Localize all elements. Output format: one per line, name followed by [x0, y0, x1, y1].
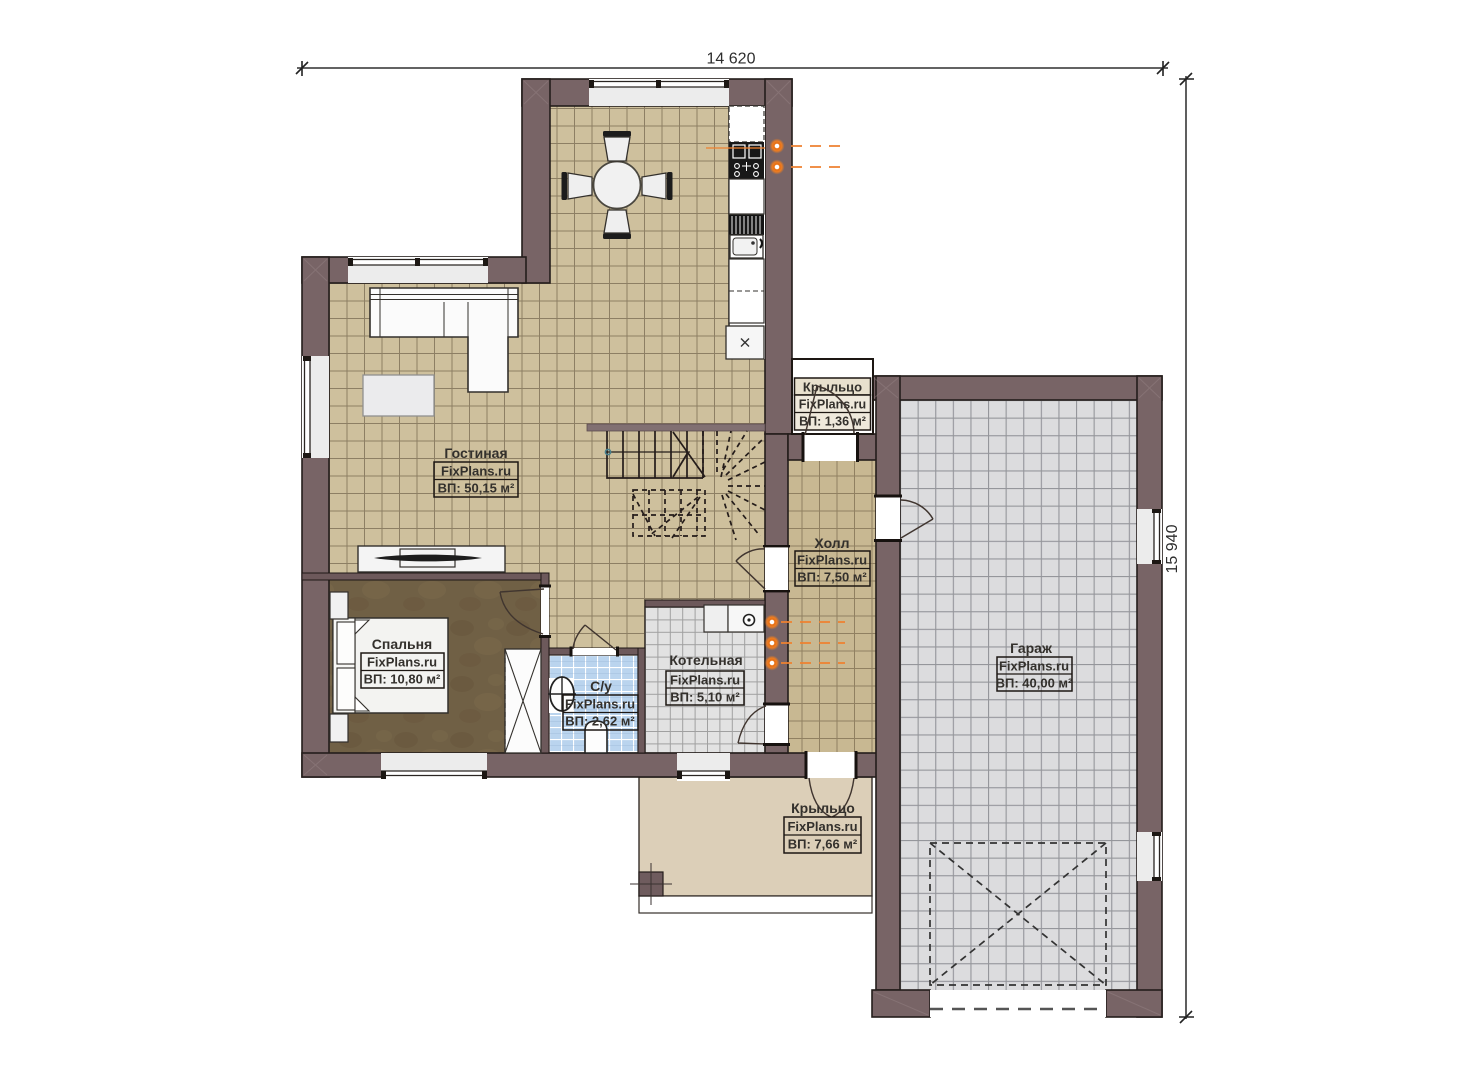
svg-text:С/у: С/у: [590, 678, 612, 694]
svg-text:ВП: 40,00 м²: ВП: 40,00 м²: [996, 676, 1073, 691]
svg-text:FixPlans.ru: FixPlans.ru: [565, 697, 635, 712]
svg-text:Гараж: Гараж: [1010, 640, 1053, 656]
svg-text:ВП: 50,15 м²: ВП: 50,15 м²: [438, 481, 515, 496]
svg-text:FixPlans.ru: FixPlans.ru: [799, 398, 866, 412]
svg-text:ВП: 2,62 м²: ВП: 2,62 м²: [565, 714, 635, 729]
svg-text:Спальня: Спальня: [372, 636, 432, 652]
svg-text:14 620: 14 620: [707, 51, 756, 68]
svg-text:ВП: 10,80 м²: ВП: 10,80 м²: [364, 672, 441, 687]
svg-text:15 940: 15 940: [1164, 524, 1181, 573]
svg-text:FixPlans.ru: FixPlans.ru: [441, 464, 511, 479]
svg-text:Котельная: Котельная: [669, 652, 742, 668]
svg-text:Холл: Холл: [814, 535, 849, 551]
svg-text:FixPlans.ru: FixPlans.ru: [797, 553, 867, 568]
svg-text:FixPlans.ru: FixPlans.ru: [367, 655, 437, 670]
svg-text:FixPlans.ru: FixPlans.ru: [999, 659, 1069, 674]
svg-text:ВП: 7,66 м²: ВП: 7,66 м²: [788, 837, 858, 852]
svg-text:FixPlans.ru: FixPlans.ru: [670, 673, 740, 688]
svg-text:Крыльцо: Крыльцо: [791, 800, 855, 816]
svg-text:ВП: 7,50 м²: ВП: 7,50 м²: [797, 570, 867, 585]
svg-text:ВП: 5,10 м²: ВП: 5,10 м²: [670, 690, 740, 705]
svg-text:FixPlans.ru: FixPlans.ru: [787, 819, 857, 834]
svg-text:Гостиная: Гостиная: [444, 445, 507, 461]
